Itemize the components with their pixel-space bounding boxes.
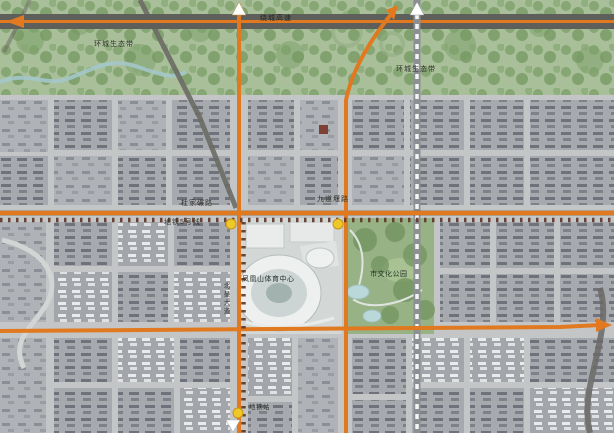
jiudaoyan-road-label: 九道堰路 [317, 196, 349, 204]
metro-station-icon [333, 219, 343, 229]
small-arena [306, 248, 334, 268]
ring-expressway-label: 绕城高速 [260, 15, 292, 23]
culture-park-label: 市文化公园 [370, 271, 408, 279]
red-building [319, 125, 328, 134]
metro-station-icon [233, 408, 243, 418]
eco-belt-left-label: 环城生态带 [94, 41, 134, 49]
metro-line5-label: 地铁5号线 [164, 219, 201, 227]
pond [347, 285, 369, 299]
eco-belt-right-label: 环城生态带 [396, 66, 436, 74]
map-canvas [0, 0, 614, 433]
dujianian-road-label: 杜家碾路 [181, 200, 213, 208]
metro-station-label: 地铁站 [249, 404, 270, 412]
sports-center-label: 凤凰山体育中心 [242, 276, 295, 284]
city-master-plan-map: 环城生态带 绕城高速 环城生态带 杜家碾路 九道堰路 地铁5号线 北星大道 凤凰… [0, 0, 614, 433]
metro-station-icon [226, 219, 236, 229]
beixing-avenue-label: 北星大道 [221, 282, 229, 316]
ring-expressway-road [0, 14, 614, 29]
pond [363, 310, 381, 322]
